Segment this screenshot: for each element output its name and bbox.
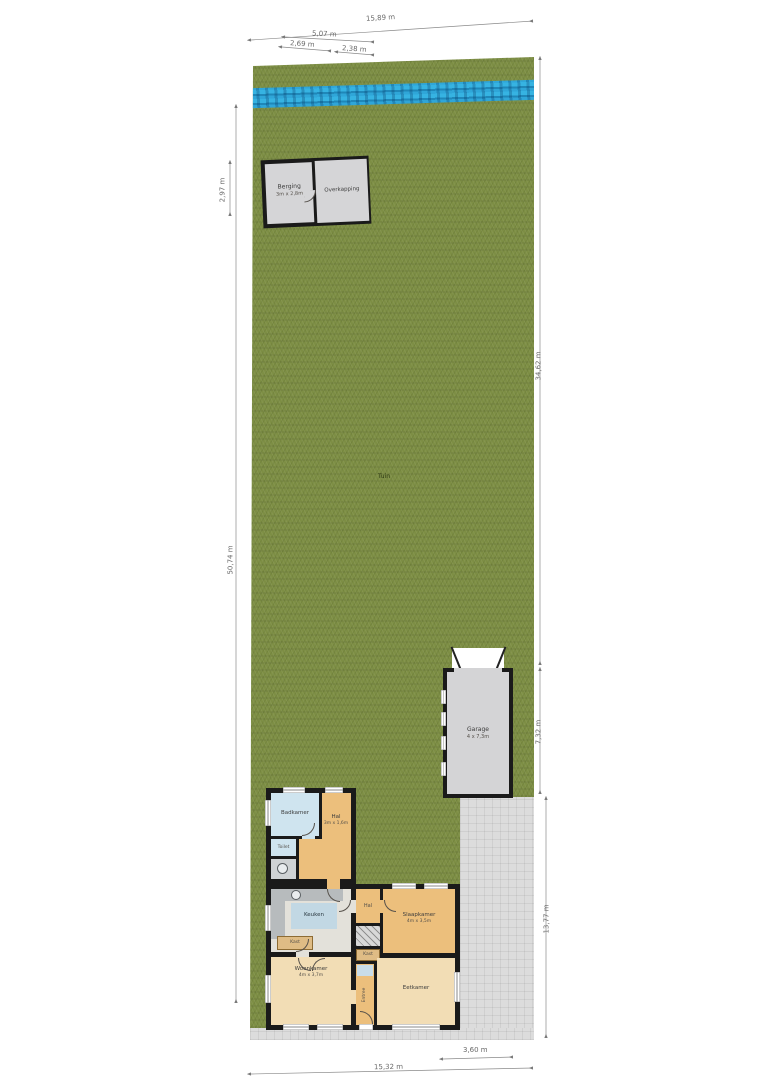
dim-left-shed-height: 2,97 m <box>218 178 226 203</box>
dim-right-lower: 13,77 m <box>543 904 551 933</box>
floor-plan-canvas: Tuin Berging 3m x 2,8m Overkapping Garag… <box>0 0 768 1086</box>
dim-top-shed-total: 5,07 m <box>312 29 337 38</box>
dim-top-shed-left: 2,69 m <box>290 39 315 49</box>
dim-left-total: 50,74 m <box>227 545 235 574</box>
dim-right-garage: 7,32 m <box>534 720 542 745</box>
dim-right-upper: 34,62 m <box>535 351 543 380</box>
dimension-lines <box>0 0 768 1086</box>
dim-bottom-total: 15,32 m <box>374 1063 403 1072</box>
dim-bottom-garage-width: 3,60 m <box>463 1046 488 1054</box>
dim-top-shed-right: 2,38 m <box>342 44 367 54</box>
